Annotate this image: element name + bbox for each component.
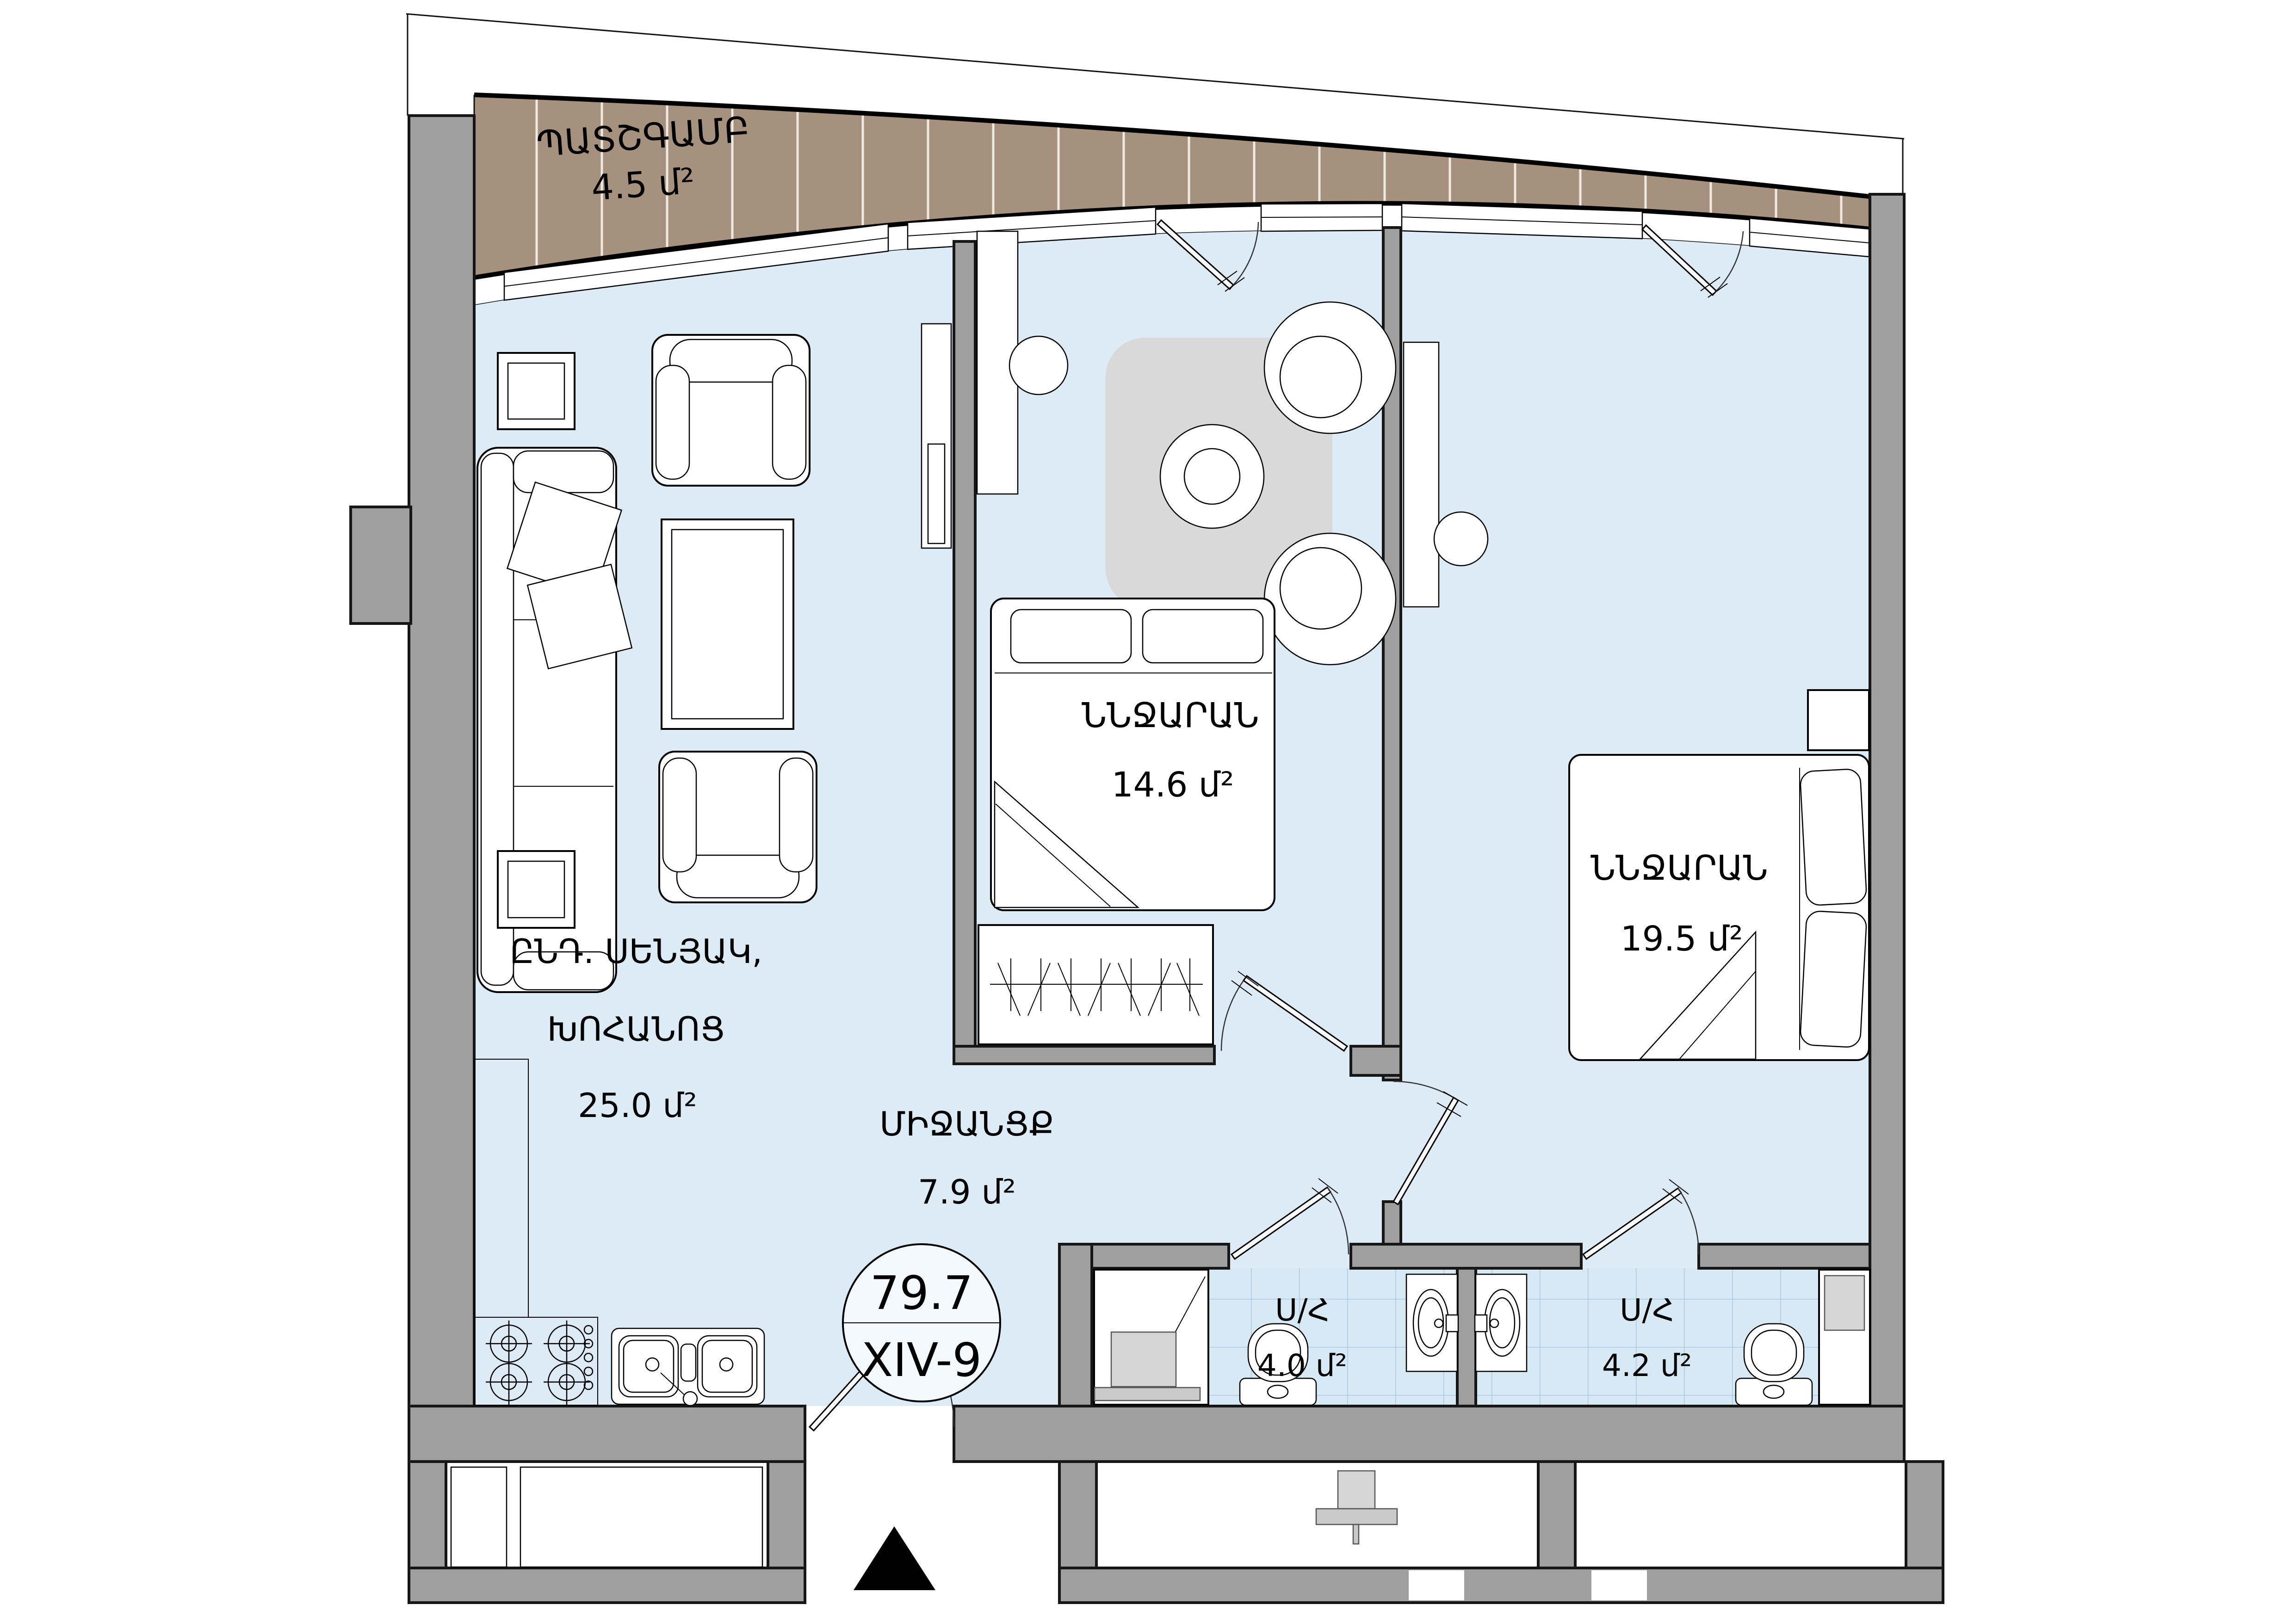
wall-bathroom1-left [1059,1244,1092,1406]
armchair-bottom [659,752,817,902]
living-area-label: 25.0 մ² [578,1086,697,1125]
toilet-2 [1736,1324,1812,1405]
hall-wall-gap-1 [1409,1570,1464,1600]
bedroom2-nightstand [1808,690,1869,750]
balcony-area: 4.5 մ² [590,160,696,208]
corridor-label: ՄԻՋԱՆՑՔ [879,1105,1054,1143]
hall-wall-left [409,1568,805,1603]
wardrobe [978,925,1213,1044]
tv-console [922,324,951,548]
bedroom2-label: ՆՆՋԱՐԱՆ [1590,848,1768,888]
hall-console [1316,1471,1397,1544]
wall-bedroom1-jamb [1351,1046,1401,1075]
shower1-bench [1095,1388,1200,1401]
wall-bathrooms-top [1351,1244,1581,1268]
wall-left [409,116,474,1406]
entrance-arrow [854,1526,935,1590]
armchair-top [652,335,810,486]
bathroom1-label: Ս/Հ [1275,1292,1330,1328]
bedroom2-desk-stool [1434,512,1488,566]
bedroom1-area-label: 14.6 մ² [1112,765,1234,805]
table-chair-bottom [1264,533,1396,665]
unit-badge: 79.7 XIV-9 [843,1244,1000,1401]
bedroom2-desk [1404,342,1439,607]
shaft-2 [520,1467,762,1567]
bed2-pillow-top [1800,769,1867,906]
bed1-pillow-right [1143,610,1263,663]
living-label-line2: ԽՈՀԱՆՈՑ [547,1010,725,1049]
side-table-top [498,353,575,429]
corridor-area-label: 7.9 մ² [918,1173,1016,1211]
bedroom1-window2-mullion [1261,217,1382,217]
unit-number: XIV-9 [861,1333,982,1387]
bed-2 [1569,755,1869,1060]
washing-machine [1111,1332,1176,1387]
coffee-table [662,519,793,729]
hall-wall-gap-2 [1591,1570,1647,1600]
shaft-1 [451,1467,507,1567]
table-chair-top [1264,302,1396,433]
bathroom1-area-label: 4.0 մ² [1257,1348,1347,1383]
wall-bottom-right [954,1406,1904,1462]
kitchen-sink [612,1328,764,1406]
living-label-line1: ԸՆԴ. ՍԵՆՅԱԿ, [510,932,762,971]
bedroom1-label: ՆՆՋԱՐԱՆ [1082,696,1259,735]
exterior-structures [409,1462,1943,1603]
side-table-bottom [498,851,575,928]
bathroom2-label: Ս/Հ [1620,1292,1674,1328]
wall-bottom-left [409,1406,805,1462]
bed1-pillow-left [1011,610,1131,663]
sink-1 [1406,1274,1458,1371]
sink-2 [1475,1274,1527,1371]
wall-bedroom1-bottom [954,1046,1214,1064]
bathroom2-area-label: 4.2 մ² [1602,1348,1692,1383]
round-table-inner [1184,449,1240,504]
wall-bathroom-divider [1457,1268,1476,1406]
wall-bathroom2-top [1699,1244,1870,1268]
shower-2 [1819,1270,1870,1405]
floor-plan-canvas: ՊԱՏՇԳԱՄԲ 4.5 մ² [0,0,2296,1623]
wall-right [1870,194,1904,1406]
bedroom2-area-label: 19.5 մ² [1621,919,1743,959]
bed2-pillow-bottom [1800,911,1867,1048]
bed-1 [991,599,1275,910]
hall-wall-right [1059,1568,1943,1603]
unit-total-area: 79.7 [870,1266,973,1320]
wall-living-bedroom1 [954,241,975,1064]
shower2-unit [1825,1276,1864,1330]
shower-1 [1094,1270,1208,1405]
wall-left-column [351,507,411,623]
bedroom1-desk-stool [1009,336,1068,395]
